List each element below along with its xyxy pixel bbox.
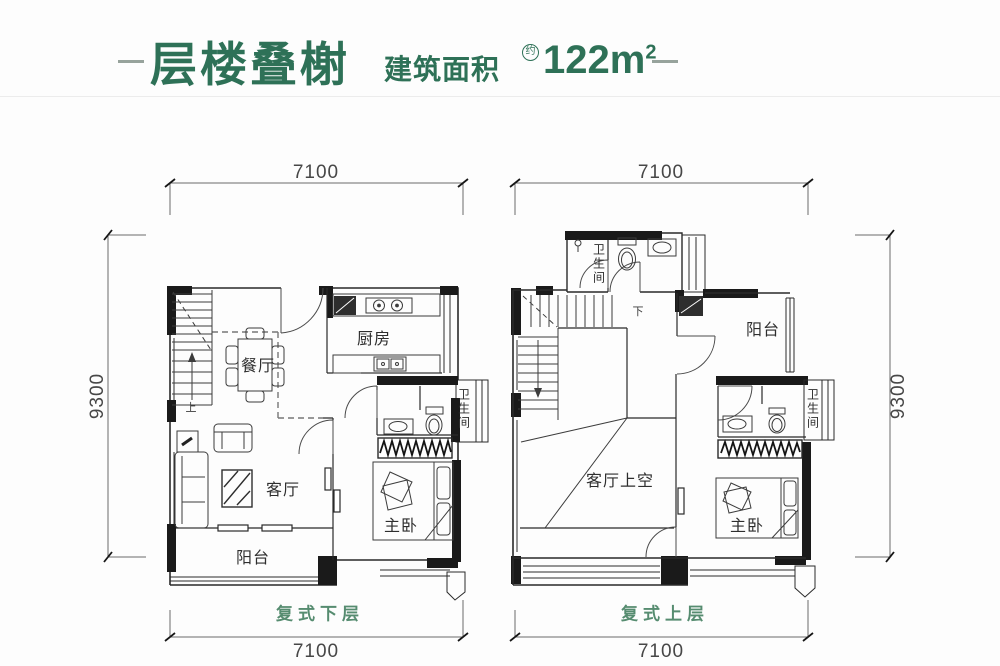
shower-icon-top [575, 240, 581, 252]
room-label-living: 客厅 [266, 476, 300, 500]
room-label-bath-lower: 卫生间 [456, 388, 473, 430]
dim-bottom-upper: 7100 [638, 641, 684, 663]
room-label-bath-top-upper: 卫生间 [591, 243, 608, 285]
toilet-icon-lower [426, 407, 443, 435]
bath-sink-icon-lower [384, 419, 413, 434]
bath-sink-icon-top [648, 239, 676, 256]
door-arcs-upper [580, 260, 752, 557]
sofa-icon [175, 452, 208, 528]
room-label-dining: 餐厅 [241, 352, 275, 376]
armchair-icon [214, 424, 252, 452]
stairs-icon-upper [518, 295, 612, 420]
wall-blocks-upper [511, 231, 811, 585]
floor-label-lower: 复式下层 [276, 600, 364, 625]
wardrobe-icon-lower [378, 438, 452, 458]
room-label-bath-upper: 卫生间 [805, 388, 822, 430]
room-label-balcony-lower: 阳台 [236, 544, 270, 568]
floor-label-upper: 复式上层 [621, 600, 709, 625]
dimension-lines-lower [104, 179, 468, 641]
floor-plan-upper [510, 179, 894, 641]
stairs-icon-lower [172, 290, 212, 405]
speaker-icon [177, 431, 198, 452]
floorplan-sheet: 层楼叠榭 建筑面积 约 122m2 [0, 0, 1000, 666]
kitchen-sink-icon [374, 357, 406, 371]
room-label-kitchen: 厨房 [357, 325, 391, 349]
stair-direction-down: 下 [633, 303, 644, 319]
room-label-master-lower: 主卧 [384, 512, 418, 536]
windows-upper [517, 298, 815, 597]
wardrobe-icon-upper [718, 440, 802, 458]
dim-bottom-lower: 7100 [293, 641, 339, 663]
tv-cabinet-icon [222, 470, 252, 507]
fridge-icon [334, 296, 356, 315]
room-label-master-upper: 主卧 [730, 512, 764, 536]
dim-side-lower: 9300 [87, 373, 109, 419]
stair-direction-up: 上 [186, 399, 197, 415]
dim-top-upper: 7100 [638, 162, 684, 184]
toilet-icon-upper [769, 408, 785, 433]
ac-unit-icon [679, 296, 703, 316]
dim-top-lower: 7100 [293, 162, 339, 184]
dim-side-upper: 9300 [888, 373, 910, 419]
stove-icon [366, 298, 412, 313]
floor-plan-lower [104, 179, 488, 641]
floorplan-drawing [0, 0, 1000, 666]
room-label-void: 客厅上空 [586, 467, 654, 491]
room-label-balcony-upper: 阳台 [746, 316, 780, 340]
